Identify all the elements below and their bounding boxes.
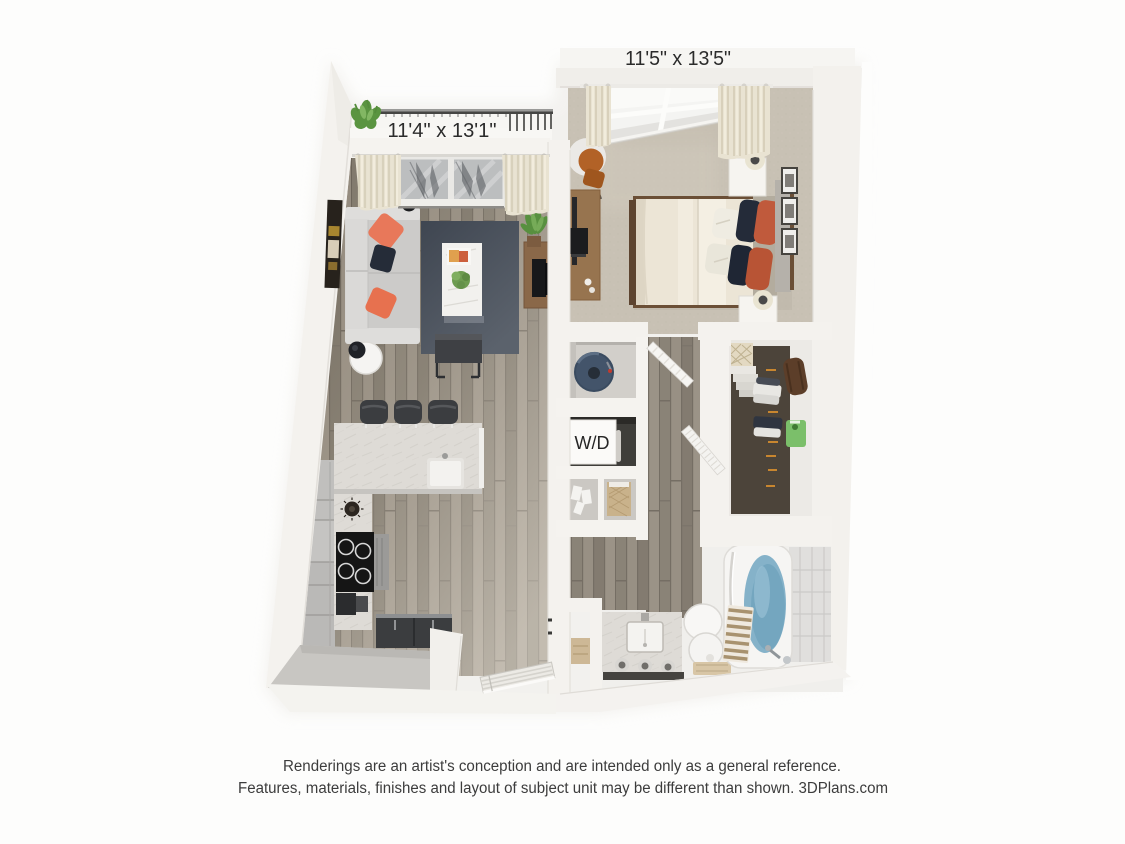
svg-text:11'5" x 13'5": 11'5" x 13'5" [625,48,731,70]
svg-text:Features, materials, finishes: Features, materials, finishes and layout… [238,780,888,797]
svg-text:11'4" x 13'1": 11'4" x 13'1" [388,120,497,142]
svg-text:W/D: W/D [575,433,610,453]
svg-text:Renderings are an artist's con: Renderings are an artist's conception an… [283,758,841,775]
